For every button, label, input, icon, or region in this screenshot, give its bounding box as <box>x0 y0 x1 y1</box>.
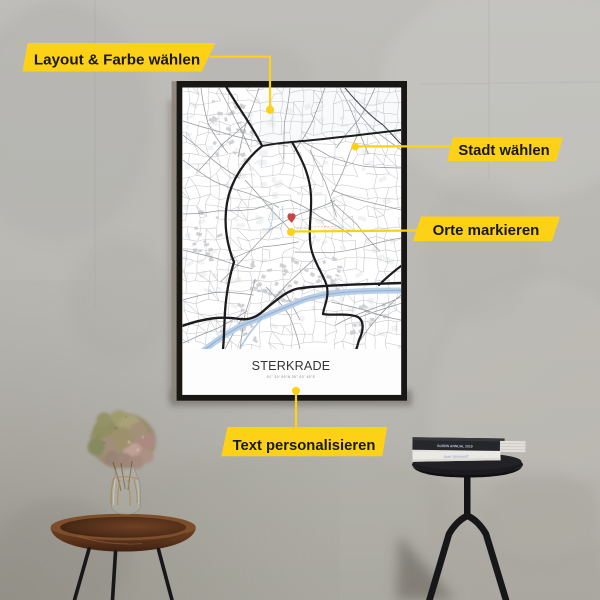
svg-text:Stadt wählen: Stadt wählen <box>458 143 549 159</box>
svg-text:51° 30' 59"N 06° 50' 48"E: 51° 30' 59"N 06° 50' 48"E <box>267 375 316 379</box>
svg-text:Layout & Farbe wählen: Layout & Farbe wählen <box>34 52 200 69</box>
svg-text:BJÖRN ANNUAL 2019: BJÖRN ANNUAL 2019 <box>437 443 473 448</box>
svg-text:Orte markieren: Orte markieren <box>433 222 540 239</box>
svg-text:Text personalisieren: Text personalisieren <box>233 438 376 454</box>
svg-text:Axel Vervoordt: Axel Vervoordt <box>443 455 470 459</box>
svg-text:STERKRADE: STERKRADE <box>252 359 331 373</box>
